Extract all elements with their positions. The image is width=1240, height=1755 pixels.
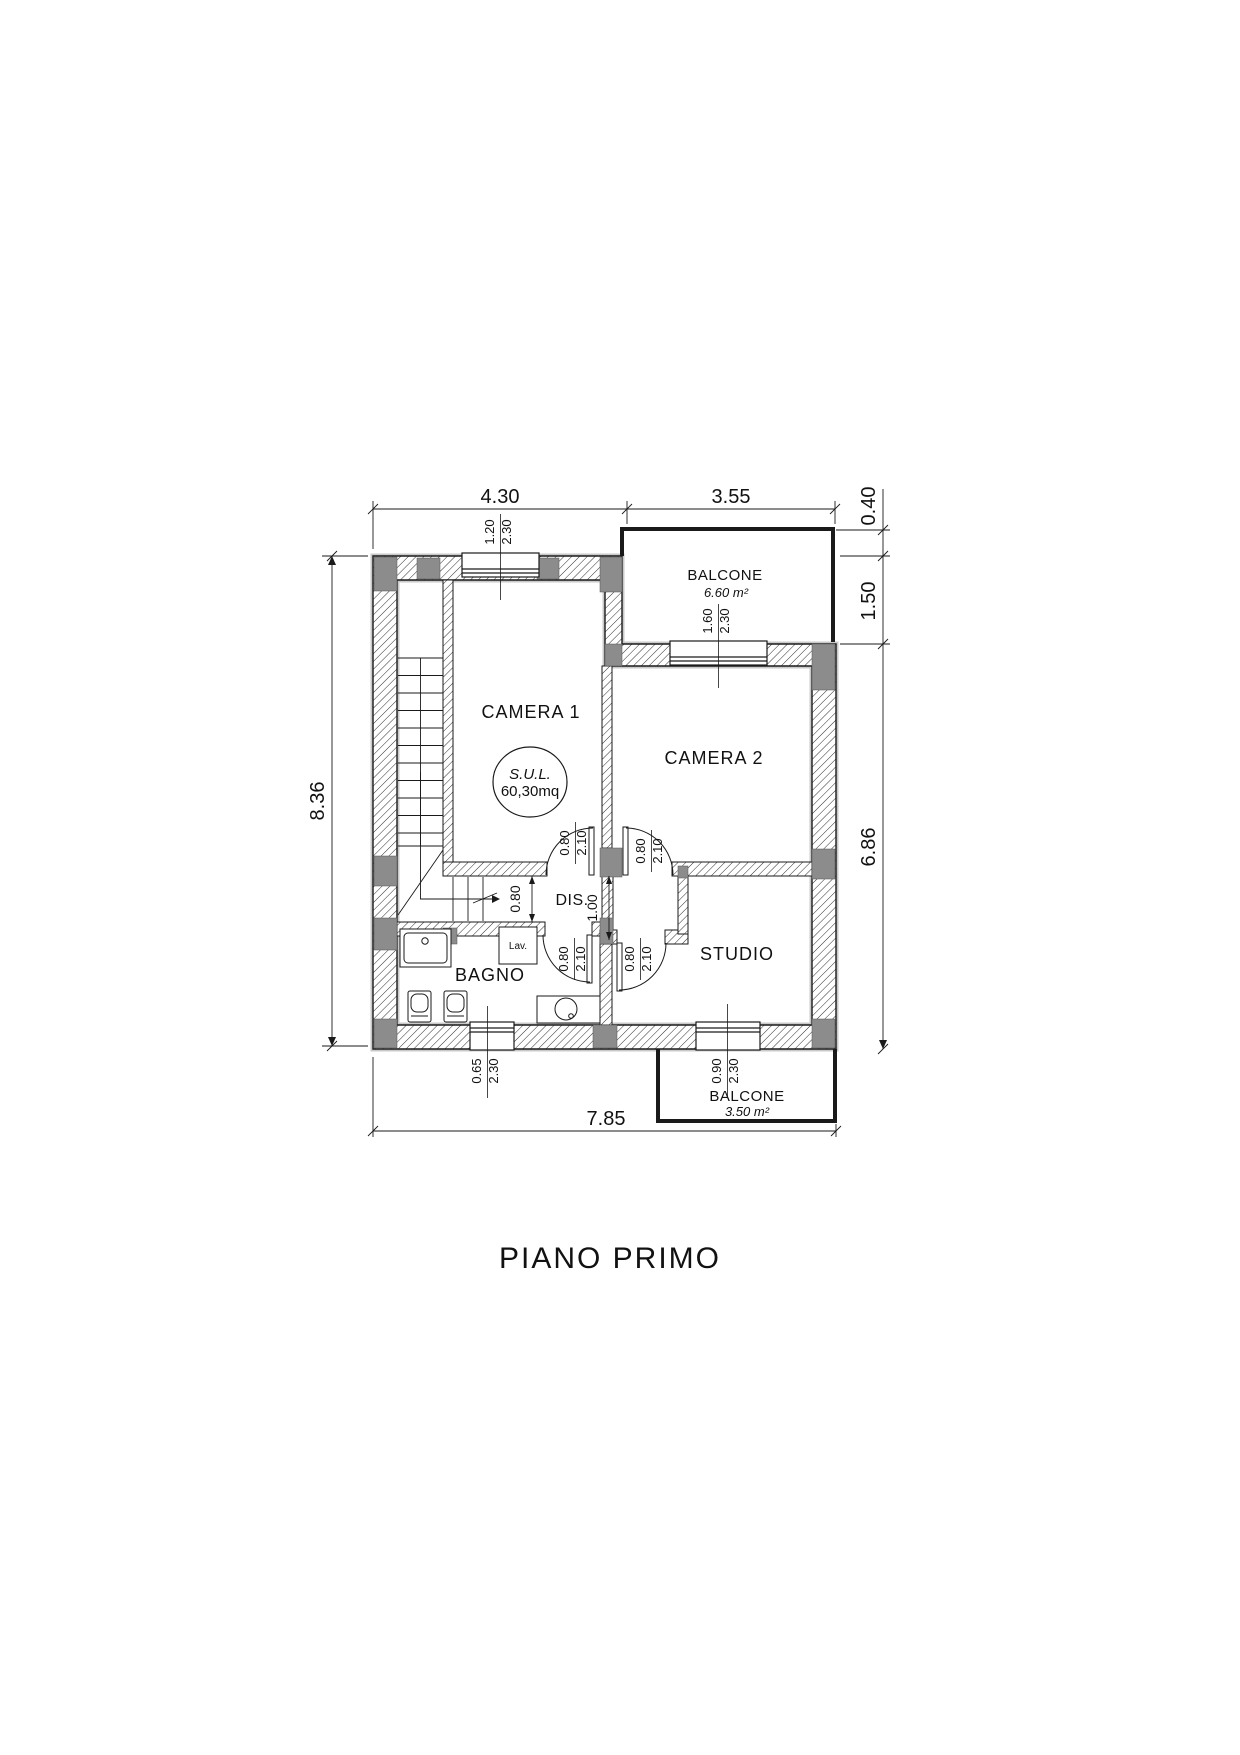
pier bbox=[605, 644, 622, 666]
pier bbox=[600, 848, 622, 877]
balcony-top-label: BALCONE bbox=[687, 567, 762, 584]
dim-right-main: 6.86 bbox=[858, 828, 880, 867]
toilet bbox=[408, 991, 431, 1022]
dim-top-left: 4.30 bbox=[481, 486, 520, 508]
room-label-camera1: CAMERA 1 bbox=[481, 702, 580, 722]
pier bbox=[537, 558, 559, 579]
wall-camera1-camera2 bbox=[602, 666, 612, 848]
window-camera2-height: 2.30 bbox=[717, 608, 732, 633]
pier bbox=[812, 1019, 835, 1048]
window-camera1-width: 1.20 bbox=[482, 519, 497, 544]
dim-dis-width: 1.00 bbox=[584, 894, 600, 921]
window-camera1-height: 2.30 bbox=[499, 519, 514, 544]
dim-top-right: 3.55 bbox=[712, 486, 751, 508]
wall-camera2-bottom bbox=[672, 862, 812, 876]
floor-plan-page: CAMERA 1 CAMERA 2 BAGNO STUDIO DIS. Lav.… bbox=[0, 0, 1240, 1755]
door-camera1-height: 2.10 bbox=[574, 830, 589, 855]
pier bbox=[374, 1019, 397, 1048]
wall-camera1-bottom bbox=[443, 862, 547, 876]
pier bbox=[374, 856, 397, 886]
wall-dis-studio bbox=[678, 876, 688, 934]
paper-background bbox=[0, 0, 1240, 1755]
door-camera2-height: 2.10 bbox=[650, 838, 665, 863]
floor-plan-canvas: CAMERA 1 CAMERA 2 BAGNO STUDIO DIS. Lav.… bbox=[0, 0, 1240, 1755]
door-studio-width: 0.80 bbox=[622, 946, 637, 971]
washbasin bbox=[537, 996, 600, 1023]
sul-label: S.U.L. bbox=[509, 766, 551, 783]
balcony-bottom-label: BALCONE bbox=[709, 1088, 784, 1105]
pier bbox=[593, 1025, 617, 1048]
wall-stairs-camera1 bbox=[443, 580, 453, 876]
page-title: PIANO PRIMO bbox=[499, 1242, 721, 1275]
window-studio bbox=[696, 1022, 760, 1050]
dim-right-mid: 1.50 bbox=[858, 582, 880, 621]
window-bagno bbox=[470, 1022, 514, 1050]
pier bbox=[374, 557, 397, 591]
door-bagno-width: 0.80 bbox=[556, 946, 571, 971]
pier bbox=[812, 849, 835, 879]
balcony-top-area: 6.60 m² bbox=[704, 585, 749, 600]
dim-left-total: 8.36 bbox=[307, 782, 329, 821]
door-camera1-width: 0.80 bbox=[557, 830, 572, 855]
balcony-bottom-area: 3.50 m² bbox=[725, 1104, 770, 1119]
room-label-studio: STUDIO bbox=[700, 944, 774, 964]
pier bbox=[374, 918, 397, 950]
sul-value: 60,30mq bbox=[501, 783, 559, 800]
room-label-bagno: BAGNO bbox=[455, 965, 525, 985]
window-studio-width: 0.90 bbox=[709, 1058, 724, 1083]
window-camera2-width: 1.60 bbox=[700, 608, 715, 633]
dim-bottom-total: 7.85 bbox=[587, 1108, 626, 1130]
pier bbox=[600, 557, 622, 592]
fixture-label-lav: Lav. bbox=[509, 941, 527, 952]
dim-dis-height: 0.80 bbox=[507, 885, 523, 912]
shower-tray bbox=[400, 929, 451, 967]
wall-bagno-studio bbox=[600, 944, 612, 1025]
bidet bbox=[444, 991, 467, 1022]
pier bbox=[600, 918, 613, 944]
door-camera2-width: 0.80 bbox=[633, 838, 648, 863]
pier bbox=[678, 866, 688, 878]
pier bbox=[417, 558, 440, 579]
window-bagno-width: 0.65 bbox=[469, 1058, 484, 1083]
dim-right-top: 0.40 bbox=[858, 487, 880, 526]
window-bagno-height: 2.30 bbox=[486, 1058, 501, 1083]
room-label-camera2: CAMERA 2 bbox=[664, 748, 763, 768]
door-bagno-height: 2.10 bbox=[573, 946, 588, 971]
window-studio-height: 2.30 bbox=[726, 1058, 741, 1083]
pier bbox=[812, 644, 835, 690]
door-studio-height: 2.10 bbox=[639, 946, 654, 971]
